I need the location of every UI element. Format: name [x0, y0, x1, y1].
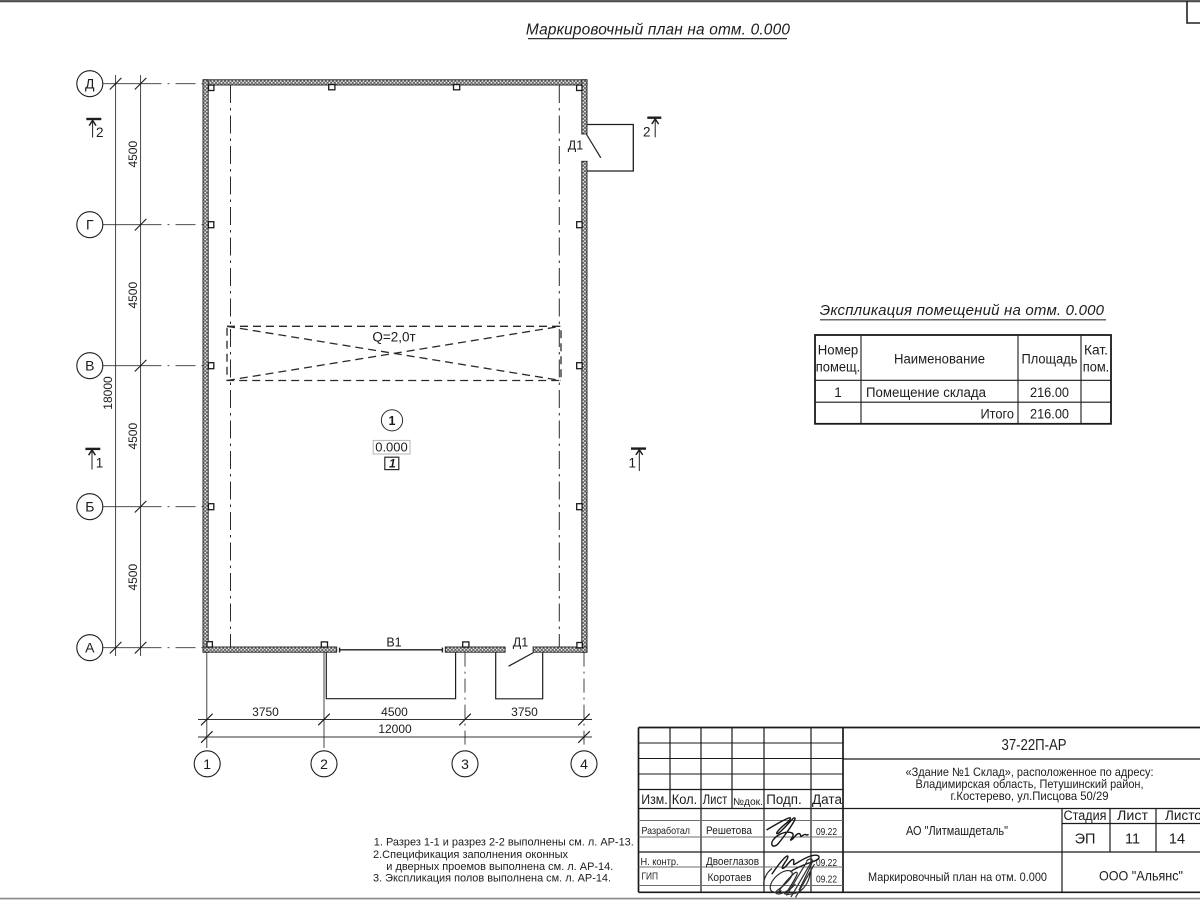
svg-text:Дата: Дата	[812, 792, 842, 807]
svg-text:Кол.: Кол.	[672, 792, 698, 807]
svg-text:2: 2	[320, 756, 328, 772]
svg-text:Маркировочный план на отм. 0.0: Маркировочный план на отм. 0.000	[526, 22, 790, 39]
svg-text:Разработал: Разработал	[642, 825, 691, 837]
svg-text:4500: 4500	[126, 423, 140, 450]
svg-text:помещ.: помещ.	[816, 360, 861, 375]
svg-text:12000: 12000	[378, 722, 412, 736]
svg-text:АО "Литмашдеталь": АО "Литмашдеталь"	[906, 824, 1008, 838]
svg-text:Решетова: Решетова	[706, 825, 753, 837]
svg-text:и дверных проемов выполнена см: и дверных проемов выполнена см. л. АР-14…	[386, 861, 613, 873]
svg-text:Коротаев: Коротаев	[708, 872, 752, 884]
svg-text:Подп.: Подп.	[766, 792, 802, 807]
svg-text:37-22П-АР: 37-22П-АР	[1002, 737, 1067, 754]
svg-text:№док.: №док.	[733, 797, 763, 808]
svg-text:Q=2,0т: Q=2,0т	[372, 330, 415, 345]
svg-text:09.22: 09.22	[816, 875, 837, 886]
svg-text:Номер: Номер	[818, 343, 859, 358]
svg-text:Стадия: Стадия	[1064, 808, 1107, 823]
svg-text:Н. контр.: Н. контр.	[641, 857, 679, 868]
svg-text:Д1: Д1	[568, 139, 583, 153]
svg-text:3: 3	[461, 756, 469, 772]
svg-text:11: 11	[1125, 832, 1140, 848]
svg-text:ГИП: ГИП	[642, 872, 659, 883]
svg-text:09.22: 09.22	[816, 858, 837, 869]
svg-text:Двоеглазов: Двоеглазов	[706, 856, 759, 868]
svg-text:Д1: Д1	[513, 635, 528, 649]
svg-text:4500: 4500	[126, 141, 140, 168]
svg-text:г.Костерево, ул.Писцова 50/29: г.Костерево, ул.Писцова 50/29	[951, 789, 1109, 803]
svg-text:Наименование: Наименование	[894, 352, 985, 367]
svg-text:3750: 3750	[511, 705, 538, 719]
svg-text:3750: 3750	[252, 705, 279, 719]
svg-text:1: 1	[834, 385, 842, 400]
svg-text:Площадь: Площадь	[1022, 352, 1078, 367]
svg-text:Итого: Итого	[981, 406, 1015, 421]
svg-text:18000: 18000	[101, 376, 115, 410]
svg-text:2: 2	[643, 125, 651, 140]
svg-text:1: 1	[628, 456, 636, 471]
svg-text:Листов: Листов	[1165, 808, 1200, 823]
svg-text:А: А	[85, 640, 95, 656]
svg-text:4: 4	[580, 756, 588, 772]
svg-text:ЭП: ЭП	[1075, 832, 1096, 848]
svg-text:Помещение склада: Помещение склада	[866, 385, 986, 400]
svg-text:4500: 4500	[126, 564, 140, 591]
svg-text:1. Разрез 1-1 и разрез 2-2 вып: 1. Разрез 1-1 и разрез 2-2 выполнены см.…	[374, 836, 634, 848]
svg-text:Кат.: Кат.	[1084, 343, 1108, 358]
svg-text:Б: Б	[85, 499, 94, 515]
svg-text:4500: 4500	[126, 282, 140, 309]
svg-text:216.00: 216.00	[1030, 385, 1069, 400]
svg-text:Д: Д	[85, 76, 95, 92]
svg-text:Лист: Лист	[1117, 808, 1148, 823]
svg-text:0.000: 0.000	[375, 440, 408, 455]
svg-text:В1: В1	[386, 635, 401, 649]
svg-text:Г: Г	[86, 217, 94, 233]
svg-text:4500: 4500	[381, 705, 408, 719]
svg-text:1: 1	[389, 414, 396, 428]
svg-text:Изм.: Изм.	[641, 792, 668, 807]
svg-text:09.22: 09.22	[816, 827, 837, 838]
svg-text:1: 1	[203, 756, 211, 772]
svg-text:1: 1	[96, 456, 104, 471]
svg-text:2: 2	[96, 125, 104, 140]
svg-text:Лист: Лист	[703, 792, 728, 807]
svg-text:1: 1	[389, 456, 396, 470]
svg-text:14: 14	[1169, 832, 1185, 848]
svg-text:2.Спецификация заполнения окон: 2.Спецификация заполнения оконных	[373, 849, 568, 861]
svg-text:216.00: 216.00	[1030, 406, 1069, 421]
svg-text:Экспликация помещений на отм.: Экспликация помещений на отм. 0.000	[820, 302, 1105, 319]
svg-text:ООО "Альянс": ООО "Альянс"	[1099, 868, 1183, 884]
svg-text:3. Экспликация полов выполнена: 3. Экспликация полов выполнена см. л. АР…	[373, 873, 611, 885]
svg-text:пом.: пом.	[1083, 360, 1110, 375]
svg-text:В: В	[85, 358, 94, 374]
svg-text:Маркировочный план на отм. 0.0: Маркировочный план на отм. 0.000	[868, 870, 1047, 884]
